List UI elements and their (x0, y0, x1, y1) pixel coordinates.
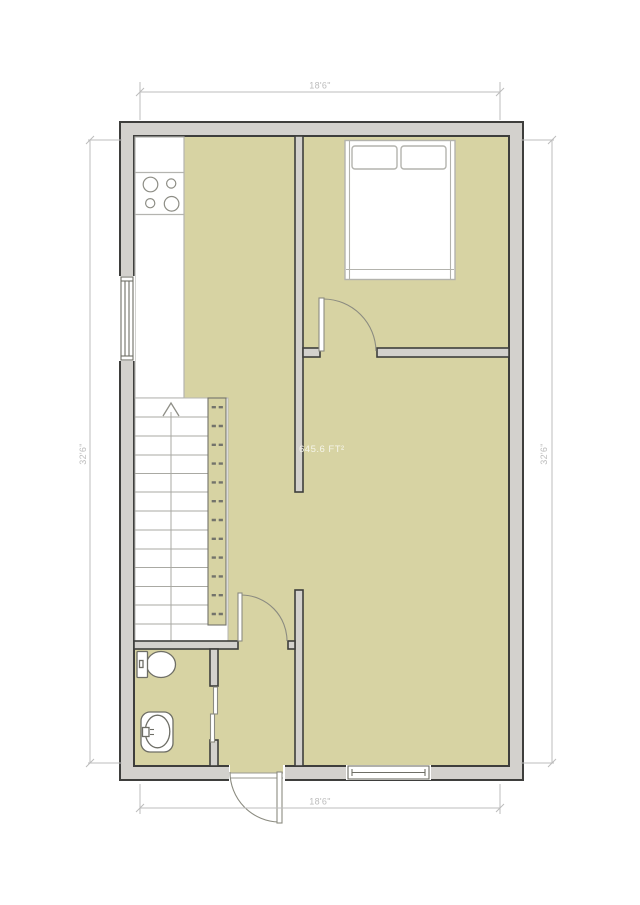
dimension-left-label: 32'6" (78, 443, 88, 464)
stair-railing (208, 398, 226, 625)
wall-bathroom-right-lower (210, 740, 218, 766)
wall-bedroom-stub (303, 348, 320, 357)
pillow (401, 146, 446, 169)
area-label: 645.6 FT² (299, 444, 345, 455)
front-door-leaf (277, 772, 282, 823)
wall-bathroom-right-upper (210, 649, 218, 686)
hall-door-leaf (238, 593, 242, 641)
wall-bedroom-left (295, 136, 303, 492)
toilet-icon (137, 652, 176, 678)
dimension-bottom-label: 18'6" (309, 797, 330, 807)
floor-plan-page: 645.6 FT² 18'6" 18'6" 32'6" 32'6" (0, 0, 640, 905)
pillow (352, 146, 397, 169)
kitchen-counter (135, 137, 184, 398)
sink-icon (141, 712, 173, 752)
stairs-up-icon (135, 398, 228, 643)
dimension-top-label: 18'6" (309, 81, 330, 91)
wall-bedroom-living (377, 348, 509, 357)
wall-bathroom-top (134, 641, 238, 649)
dimension-right-label: 32'6" (539, 443, 549, 464)
window-icon-bottom (346, 765, 431, 780)
bed-icon (345, 141, 455, 280)
bedroom-door-leaf (319, 298, 324, 351)
wall-hall-living (295, 590, 303, 766)
floor-plan: 645.6 FT² 18'6" 18'6" 32'6" 32'6" (0, 0, 640, 905)
window-icon-left (119, 276, 135, 361)
wall-hall-stub (288, 641, 295, 649)
